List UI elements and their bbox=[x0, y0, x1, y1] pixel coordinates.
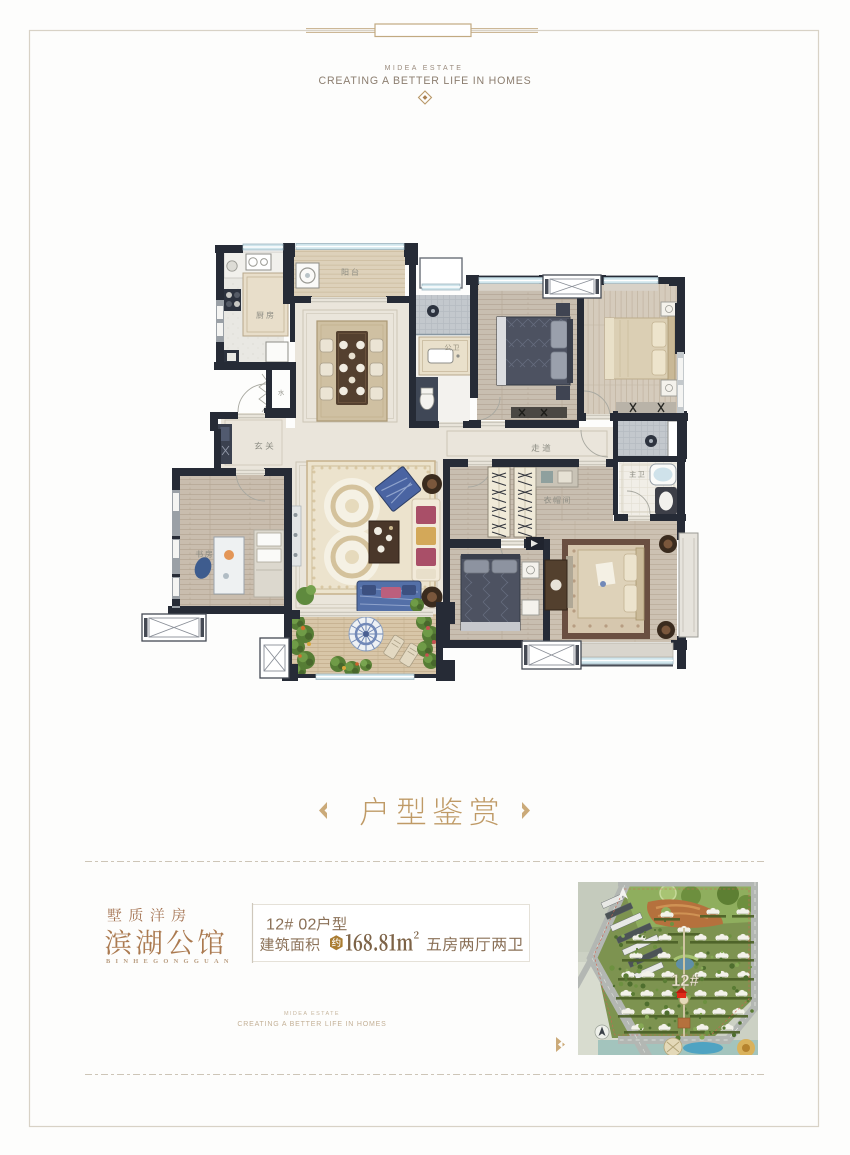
svg-text:MIDEA ESTATE: MIDEA ESTATE bbox=[385, 65, 464, 72]
svg-text:CREATING A BETTER LIFE IN HOME: CREATING A BETTER LIFE IN HOMES bbox=[237, 1021, 386, 1028]
svg-text:12#: 12# bbox=[671, 972, 699, 990]
svg-text:MIDEA ESTATE: MIDEA ESTATE bbox=[284, 1011, 340, 1017]
svg-text:CREATING A BETTER LIFE IN HOME: CREATING A BETTER LIFE IN HOMES bbox=[319, 75, 532, 87]
svg-text:12# 02: 12# 02 bbox=[266, 917, 317, 934]
svg-text:BINHEGONGGUAN: BINHEGONGGUAN bbox=[106, 958, 234, 965]
